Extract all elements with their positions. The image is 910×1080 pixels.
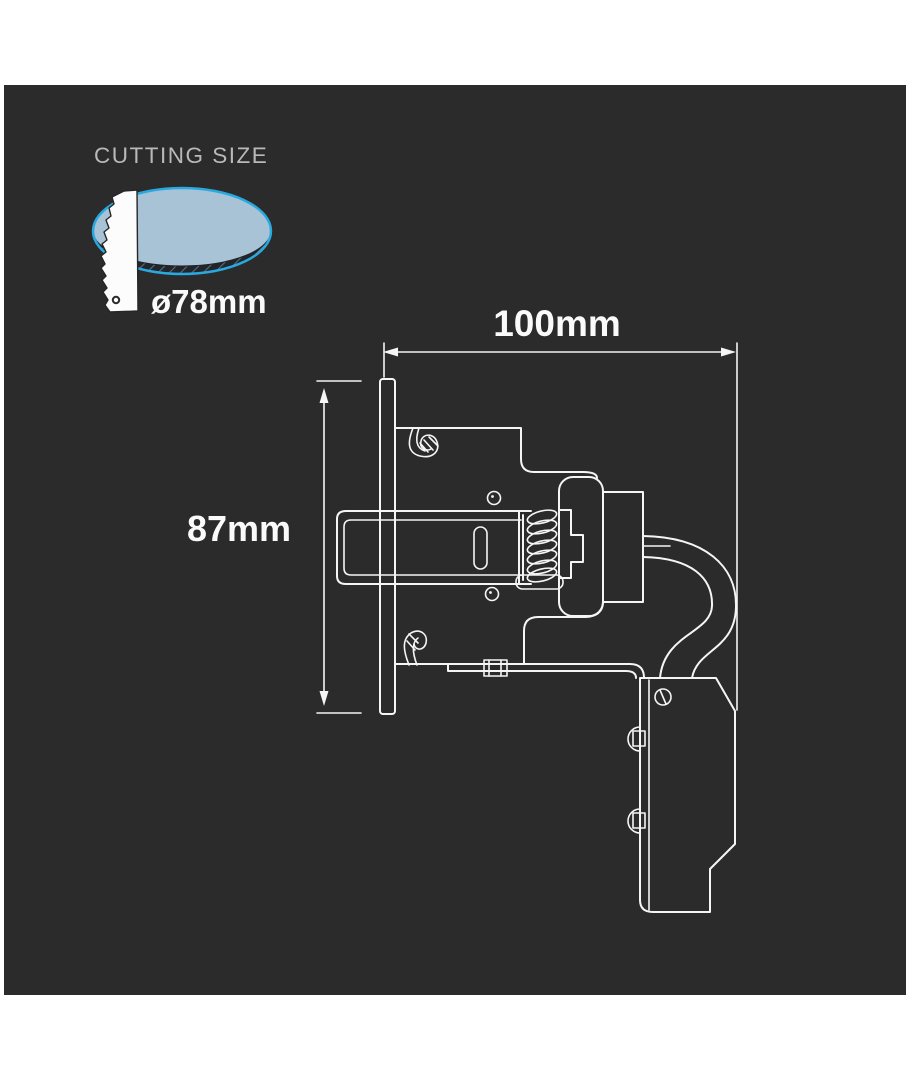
cutting-size-title: CUTTING SIZE [94,143,268,168]
cut-diameter-label: ø78mm [151,283,267,320]
product-image-page: CUTTING SIZE ø78mm 100mm 87mm [0,0,910,1080]
diagram-canvas: CUTTING SIZE ø78mm 100mm 87mm [0,0,910,1080]
height-dimension-label: 87mm [187,508,291,549]
width-dimension-label: 100mm [493,303,621,344]
